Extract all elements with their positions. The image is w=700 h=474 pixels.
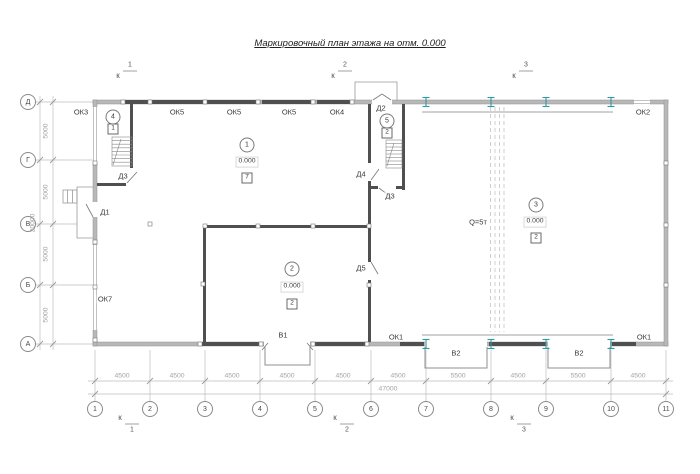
gate-aprons bbox=[265, 347, 610, 368]
window-label-ok5: ОК5 bbox=[226, 108, 242, 116]
axis-bubble-col-3: 3 bbox=[197, 401, 213, 417]
section-mark-k1-bottom-num: 1 bbox=[130, 427, 134, 434]
dim-row-3: 5000 bbox=[44, 246, 51, 261]
dim-col-5: 4500 bbox=[335, 374, 350, 381]
axis-bubble-col-1: 1 bbox=[87, 401, 103, 417]
dim-col-3: 4500 bbox=[224, 374, 239, 381]
dim-col-6: 4500 bbox=[390, 374, 405, 381]
floor-plan-drawing bbox=[0, 0, 700, 474]
floor-type-3: 2 bbox=[531, 233, 542, 244]
steel-column-icons bbox=[423, 98, 615, 349]
glazing-strips bbox=[123, 100, 636, 346]
level-mark-3: 0.000 bbox=[523, 217, 546, 228]
axis-bubble-row-b: Б bbox=[20, 277, 36, 293]
section-mark-k3-num: 3 bbox=[524, 62, 528, 69]
dim-row-4: 5000 bbox=[44, 307, 51, 322]
room-number-4: 4 bbox=[106, 110, 121, 125]
axis-bubble-col-2: 2 bbox=[142, 401, 158, 417]
section-mark-k1-num: 1 bbox=[128, 62, 132, 69]
wall-openings bbox=[93, 100, 651, 347]
axis-bubble-row-a: А bbox=[20, 336, 36, 352]
window-label-ok4: ОК4 bbox=[329, 108, 345, 116]
section-mark-k1: к bbox=[116, 72, 120, 80]
dim-col-4: 4500 bbox=[279, 374, 294, 381]
axis-bubble-col-4: 4 bbox=[252, 401, 268, 417]
window-label-ok7: ОК7 bbox=[97, 295, 113, 303]
axis-bubble-col-6: 6 bbox=[363, 401, 379, 417]
section-mark-k3: к bbox=[512, 72, 516, 80]
gate-label-v2: В2 bbox=[573, 349, 584, 357]
dim-col-8: 4500 bbox=[510, 374, 525, 381]
axis-bubble-row-d: Д bbox=[20, 94, 36, 110]
dim-col-1: 4500 bbox=[114, 374, 129, 381]
window-label-ok5: ОК5 bbox=[281, 108, 297, 116]
room-number-2: 2 bbox=[285, 262, 300, 277]
dim-col-9: 5500 bbox=[570, 374, 585, 381]
dim-row-2: 5000 bbox=[44, 184, 51, 199]
dim-col-7: 5500 bbox=[450, 374, 465, 381]
door-label-d5: Д5 bbox=[355, 264, 366, 272]
dim-row-total: 20000 bbox=[31, 214, 38, 233]
room-number-1: 1 bbox=[240, 138, 255, 153]
vestibule-and-porches bbox=[63, 82, 397, 238]
window-label-ok1: ОК1 bbox=[388, 333, 404, 341]
window-label-ok1: ОК1 bbox=[636, 333, 652, 341]
dim-col-10: 4500 bbox=[630, 374, 645, 381]
room-number-5: 5 bbox=[380, 114, 395, 129]
axis-bubble-row-g: Г bbox=[20, 152, 36, 168]
floor-type-2: 2 bbox=[287, 299, 298, 310]
axis-bubble-col-5: 5 bbox=[307, 401, 323, 417]
section-mark-lines bbox=[123, 71, 533, 424]
section-mark-k1-bottom: к bbox=[118, 414, 122, 422]
section-mark-k2: к bbox=[331, 72, 335, 80]
floor-type-5: 2 bbox=[382, 128, 393, 139]
stairs-left bbox=[112, 137, 132, 166]
door-label-d3: Д3 bbox=[117, 172, 128, 180]
gate-label-v2: В2 bbox=[450, 349, 461, 357]
floor-type-4: 1 bbox=[108, 124, 119, 135]
axis-bubble-col-11: 11 bbox=[658, 401, 674, 417]
outer-walls bbox=[93, 100, 668, 346]
axis-bubble-col-7: 7 bbox=[418, 401, 434, 417]
window-label-ok2: ОК2 bbox=[635, 108, 651, 116]
level-mark-2: 0.000 bbox=[280, 282, 303, 293]
section-mark-k2-num: 2 bbox=[343, 62, 347, 69]
crane-capacity-label: Q=5т bbox=[468, 218, 488, 226]
window-label-ok5: ОК5 bbox=[169, 108, 185, 116]
axis-bubble-col-9: 9 bbox=[538, 401, 554, 417]
door-label-d3: Д3 bbox=[384, 192, 395, 200]
door-label-d4: Д4 bbox=[355, 170, 366, 178]
section-mark-k2-bottom: к bbox=[333, 414, 337, 422]
door-label-d1: Д1 bbox=[99, 208, 110, 216]
dim-col-total: 47000 bbox=[379, 387, 398, 394]
door-label-d2: Д2 bbox=[375, 104, 386, 112]
window-label-ok3: ОК3 bbox=[73, 108, 89, 116]
axis-bubble-col-10: 10 bbox=[603, 401, 619, 417]
stairs-middle bbox=[386, 140, 402, 168]
level-mark-1: 0.000 bbox=[235, 157, 258, 168]
floor-type-1: 7 bbox=[242, 173, 253, 184]
room-number-3: 3 bbox=[529, 198, 544, 213]
dim-row-1: 5000 bbox=[44, 123, 51, 138]
section-mark-k3-bottom-num: 3 bbox=[522, 427, 526, 434]
section-mark-k3-bottom: к bbox=[510, 414, 514, 422]
section-mark-k2-bottom-num: 2 bbox=[345, 427, 349, 434]
pier-marks bbox=[93, 100, 668, 346]
gate-label-v1: В1 bbox=[277, 331, 288, 339]
floor-plan: Маркировочный план этажа на отм. 0.000 bbox=[0, 0, 700, 474]
crane-runway bbox=[422, 107, 613, 335]
axis-bubble-col-8: 8 bbox=[483, 401, 499, 417]
dim-col-2: 4500 bbox=[169, 374, 184, 381]
